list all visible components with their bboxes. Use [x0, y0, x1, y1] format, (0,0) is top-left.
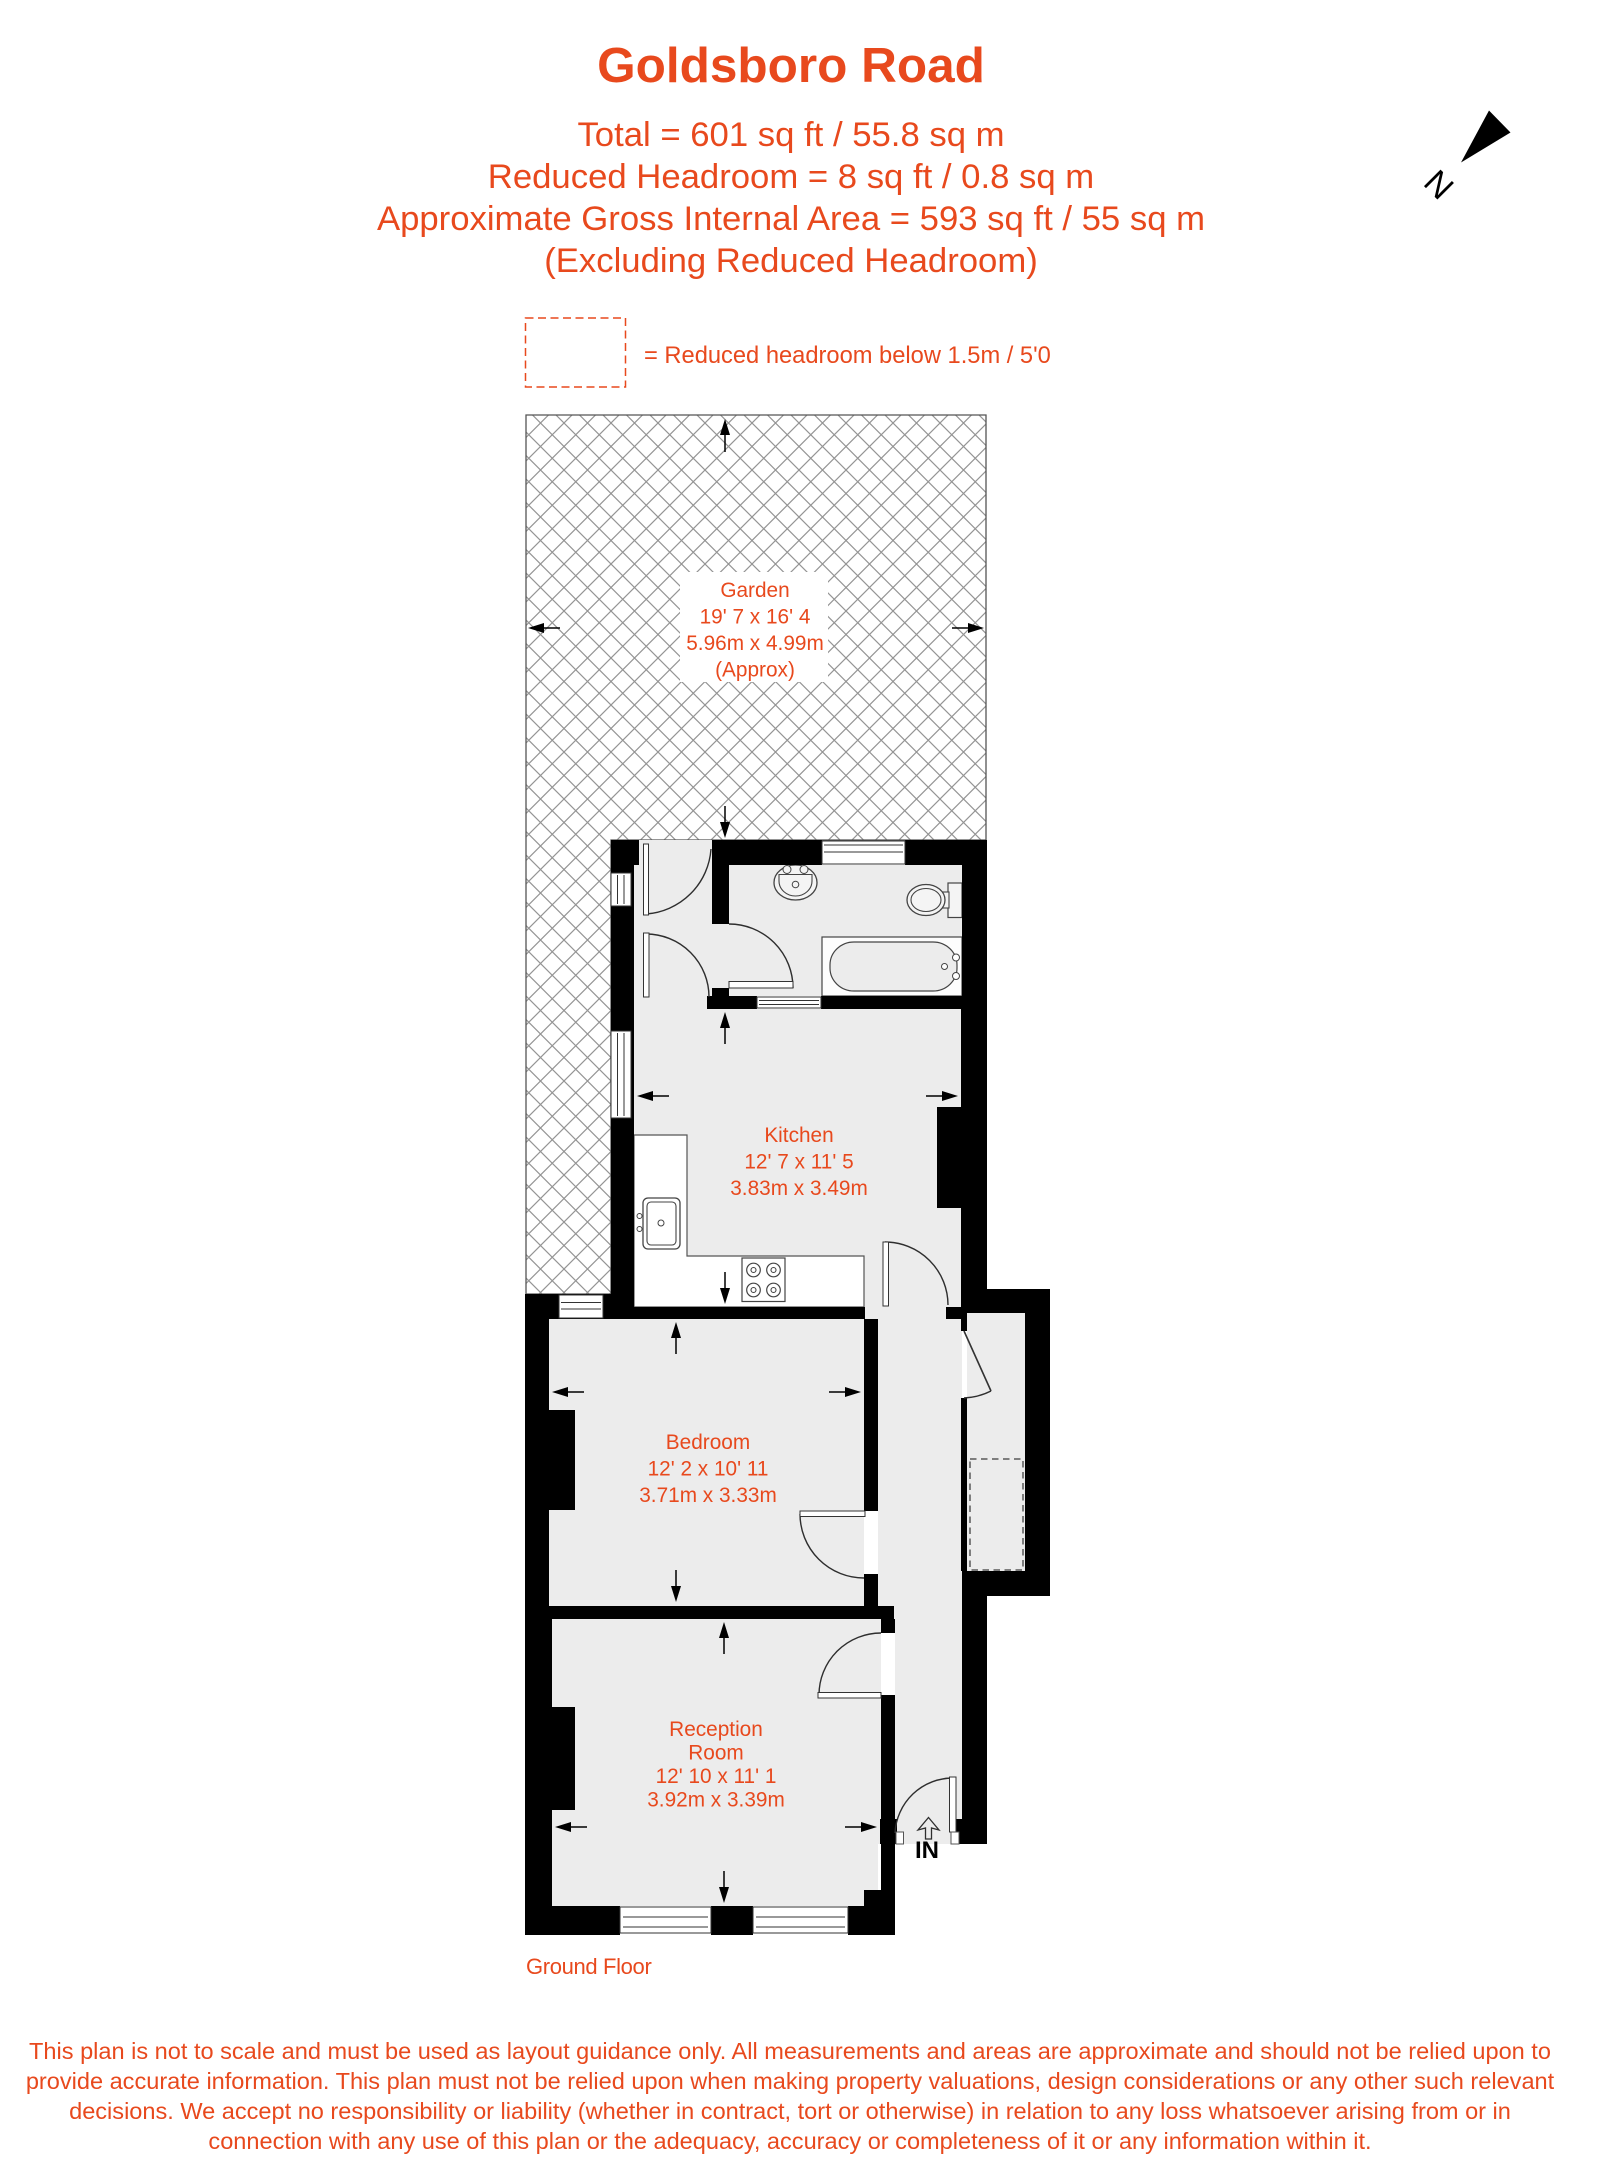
svg-text:IN: IN [915, 1837, 939, 1864]
svg-text:Reduced Headroom = 8 sq ft / 0: Reduced Headroom = 8 sq ft / 0.8 sq m [488, 158, 1094, 196]
svg-text:provide accurate information.: provide accurate information. This plan … [26, 2068, 1555, 2094]
svg-text:Ground Floor: Ground Floor [526, 1954, 651, 1979]
svg-text:Room: Room [688, 1742, 743, 1765]
svg-text:Approximate Gross Internal Are: Approximate Gross Internal Area = 593 sq… [377, 200, 1205, 238]
svg-text:Reception: Reception [669, 1718, 763, 1741]
svg-text:Total = 601 sq ft / 55.8 sq m: Total = 601 sq ft / 55.8 sq m [577, 116, 1004, 154]
svg-text:12' 2 x 10' 11: 12' 2 x 10' 11 [648, 1458, 769, 1481]
svg-text:3.71m x 3.33m: 3.71m x 3.33m [639, 1484, 777, 1507]
svg-text:5.96m x 4.99m: 5.96m x 4.99m [686, 632, 824, 655]
svg-text:Garden: Garden [720, 579, 789, 602]
svg-text:This plan is not to scale and: This plan is not to scale and must be us… [29, 2038, 1551, 2064]
svg-text:connection with any use of thi: connection with any use of this plan or … [208, 2128, 1371, 2154]
svg-text:Kitchen: Kitchen [764, 1124, 833, 1147]
svg-text:= Reduced headroom below 1.5m: = Reduced headroom below 1.5m / 5'0 [644, 343, 1051, 369]
svg-text:Goldsboro Road: Goldsboro Road [597, 38, 985, 93]
svg-text:12' 7 x 11' 5: 12' 7 x 11' 5 [744, 1151, 853, 1174]
svg-text:12' 10 x 11' 1: 12' 10 x 11' 1 [656, 1765, 777, 1788]
svg-text:3.92m x 3.39m: 3.92m x 3.39m [647, 1789, 785, 1812]
svg-text:(Excluding Reduced Headroom): (Excluding Reduced Headroom) [544, 242, 1038, 280]
svg-text:3.83m x 3.49m: 3.83m x 3.49m [730, 1177, 868, 1200]
svg-text:decisions. We accept no respon: decisions. We accept no responsibility o… [69, 2098, 1511, 2124]
svg-text:Bedroom: Bedroom [666, 1431, 750, 1454]
svg-text:19' 7 x 16' 4: 19' 7 x 16' 4 [700, 606, 811, 629]
svg-text:(Approx): (Approx) [715, 659, 795, 682]
